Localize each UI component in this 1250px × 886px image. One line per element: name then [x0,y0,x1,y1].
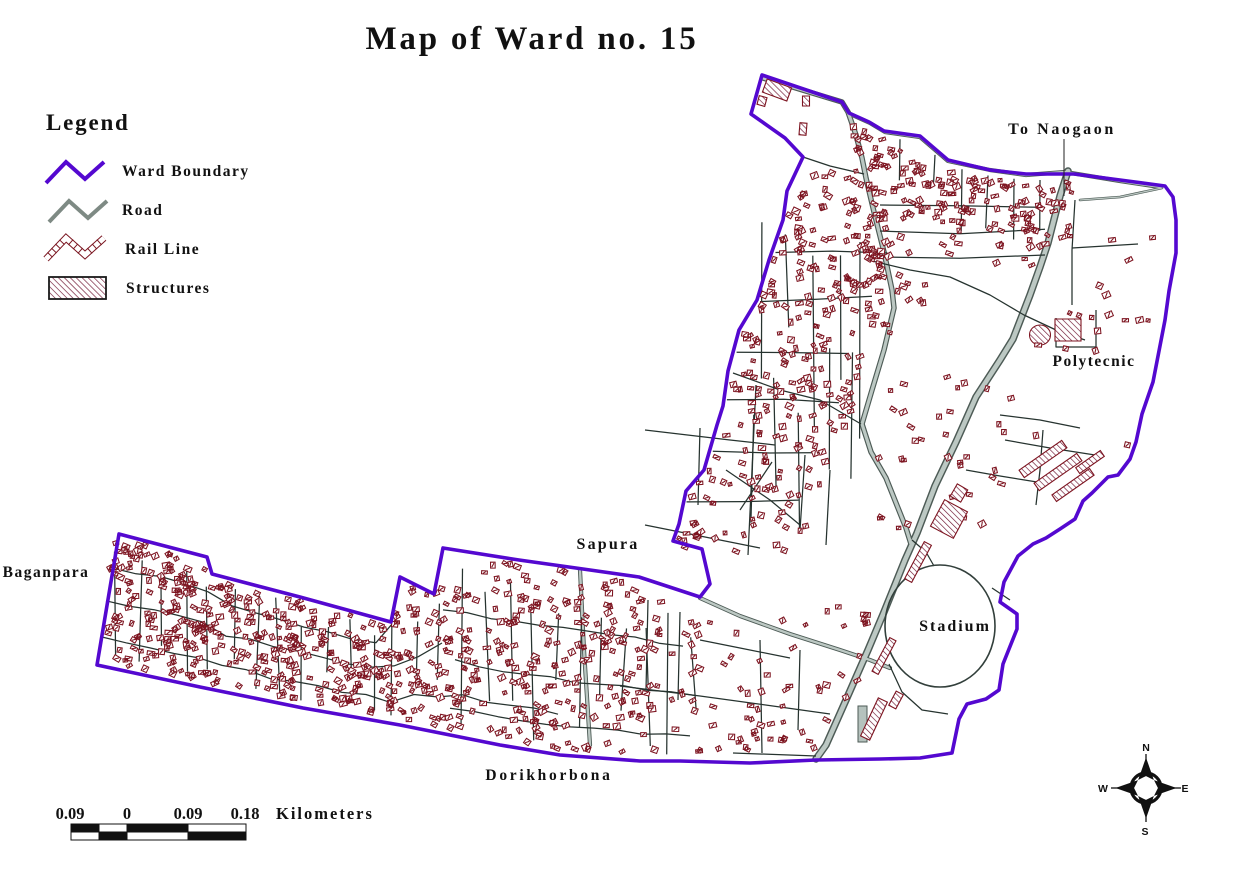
svg-text:Polytecnic: Polytecnic [1052,353,1135,370]
svg-text:0.09: 0.09 [56,804,85,823]
svg-text:0.18: 0.18 [231,804,260,823]
svg-text:N: N [1142,742,1150,754]
svg-text:Baganpara: Baganpara [3,564,90,581]
svg-text:Map of Ward no. 15: Map of Ward no. 15 [365,21,698,57]
svg-text:0: 0 [123,804,131,823]
svg-text:Structures: Structures [126,280,210,297]
svg-text:0.09: 0.09 [174,804,203,823]
svg-text:E: E [1181,783,1188,795]
svg-text:Legend: Legend [46,110,130,135]
svg-text:Kilometers: Kilometers [276,804,374,823]
svg-text:Road: Road [122,202,163,219]
svg-text:Ward Boundary: Ward Boundary [122,163,250,180]
svg-text:Sapura: Sapura [577,536,640,553]
svg-text:Rail Line: Rail Line [125,241,200,258]
svg-text:S: S [1141,826,1148,838]
svg-text:Dorikhorbona: Dorikhorbona [485,767,612,784]
svg-text:Stadium: Stadium [919,618,991,635]
svg-text:W: W [1098,783,1108,795]
svg-text:To Naogaon: To Naogaon [1008,121,1116,138]
